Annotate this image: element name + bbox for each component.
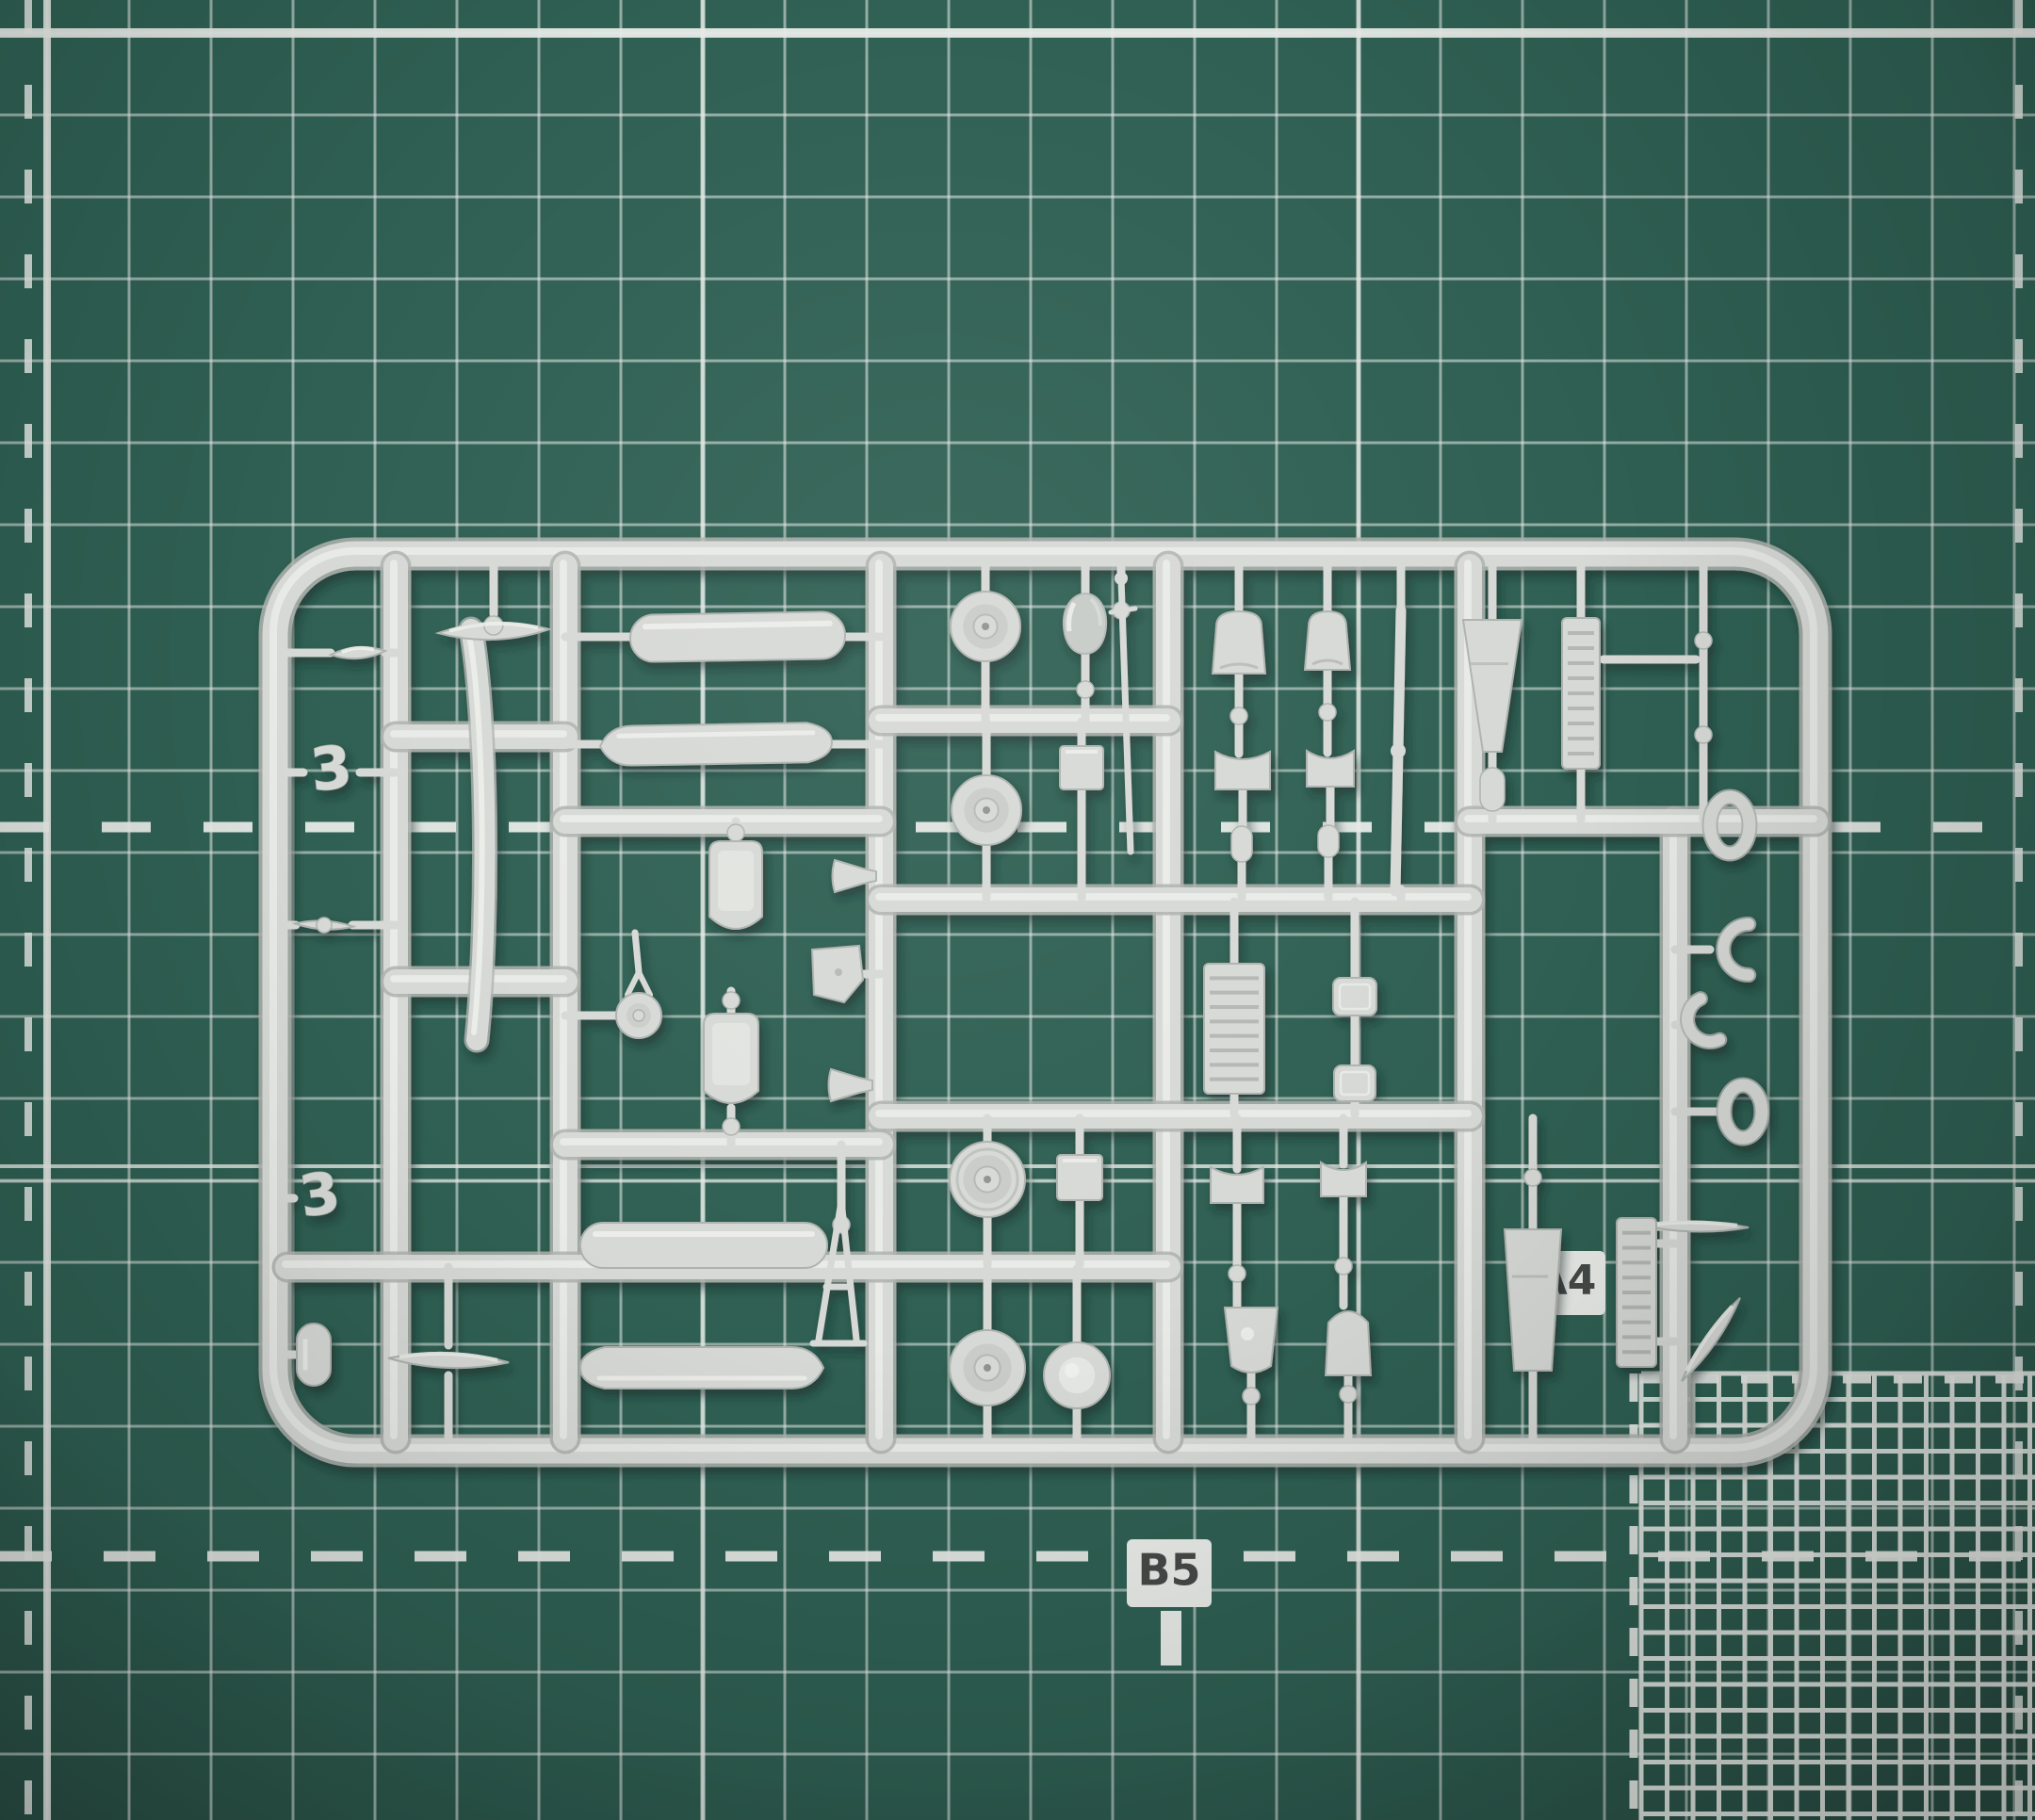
paddle-part (704, 1014, 758, 1103)
float-half (580, 1347, 823, 1389)
small-bottle (1318, 825, 1339, 857)
small-bottle (1231, 826, 1252, 862)
svg-text:3: 3 (307, 732, 355, 804)
hatch-plate (1334, 1065, 1376, 1101)
hatch-panel (1057, 1155, 1102, 1200)
hatch-plate (1333, 978, 1376, 1016)
cowling (1305, 611, 1350, 670)
main-wheel (950, 1330, 1025, 1406)
paddle-part (709, 841, 762, 929)
main-wheel (950, 1142, 1025, 1217)
scene-canvas: B5 A4 (0, 0, 2035, 1820)
louver-panel (1617, 1218, 1656, 1367)
cowling (1213, 611, 1265, 674)
float-half (630, 611, 846, 662)
hatch-panel (1060, 746, 1103, 789)
bucket-cowl (1326, 1311, 1371, 1375)
main-wheel (952, 775, 1021, 845)
svg-text:B5: B5 (1137, 1545, 1200, 1596)
nose-cone (297, 1324, 331, 1386)
canopy (1064, 593, 1106, 654)
small-bottle (1480, 768, 1505, 811)
float-half (600, 723, 833, 766)
float-half (580, 1223, 827, 1268)
photo-model-sprue-on-cutting-mat: B5 A4 (0, 0, 2035, 1820)
bucket-cowl (1225, 1308, 1278, 1373)
main-wheel (1044, 1342, 1110, 1408)
main-wheel (951, 592, 1020, 661)
mat-size-label-b5: B5 (1127, 1539, 1212, 1607)
mat-mark (1161, 1611, 1181, 1666)
fin-slab (1505, 1229, 1561, 1371)
radiator-louver (1204, 964, 1264, 1094)
louver-panel (1562, 618, 1600, 769)
clip-3-shaped: 3 (307, 732, 355, 804)
